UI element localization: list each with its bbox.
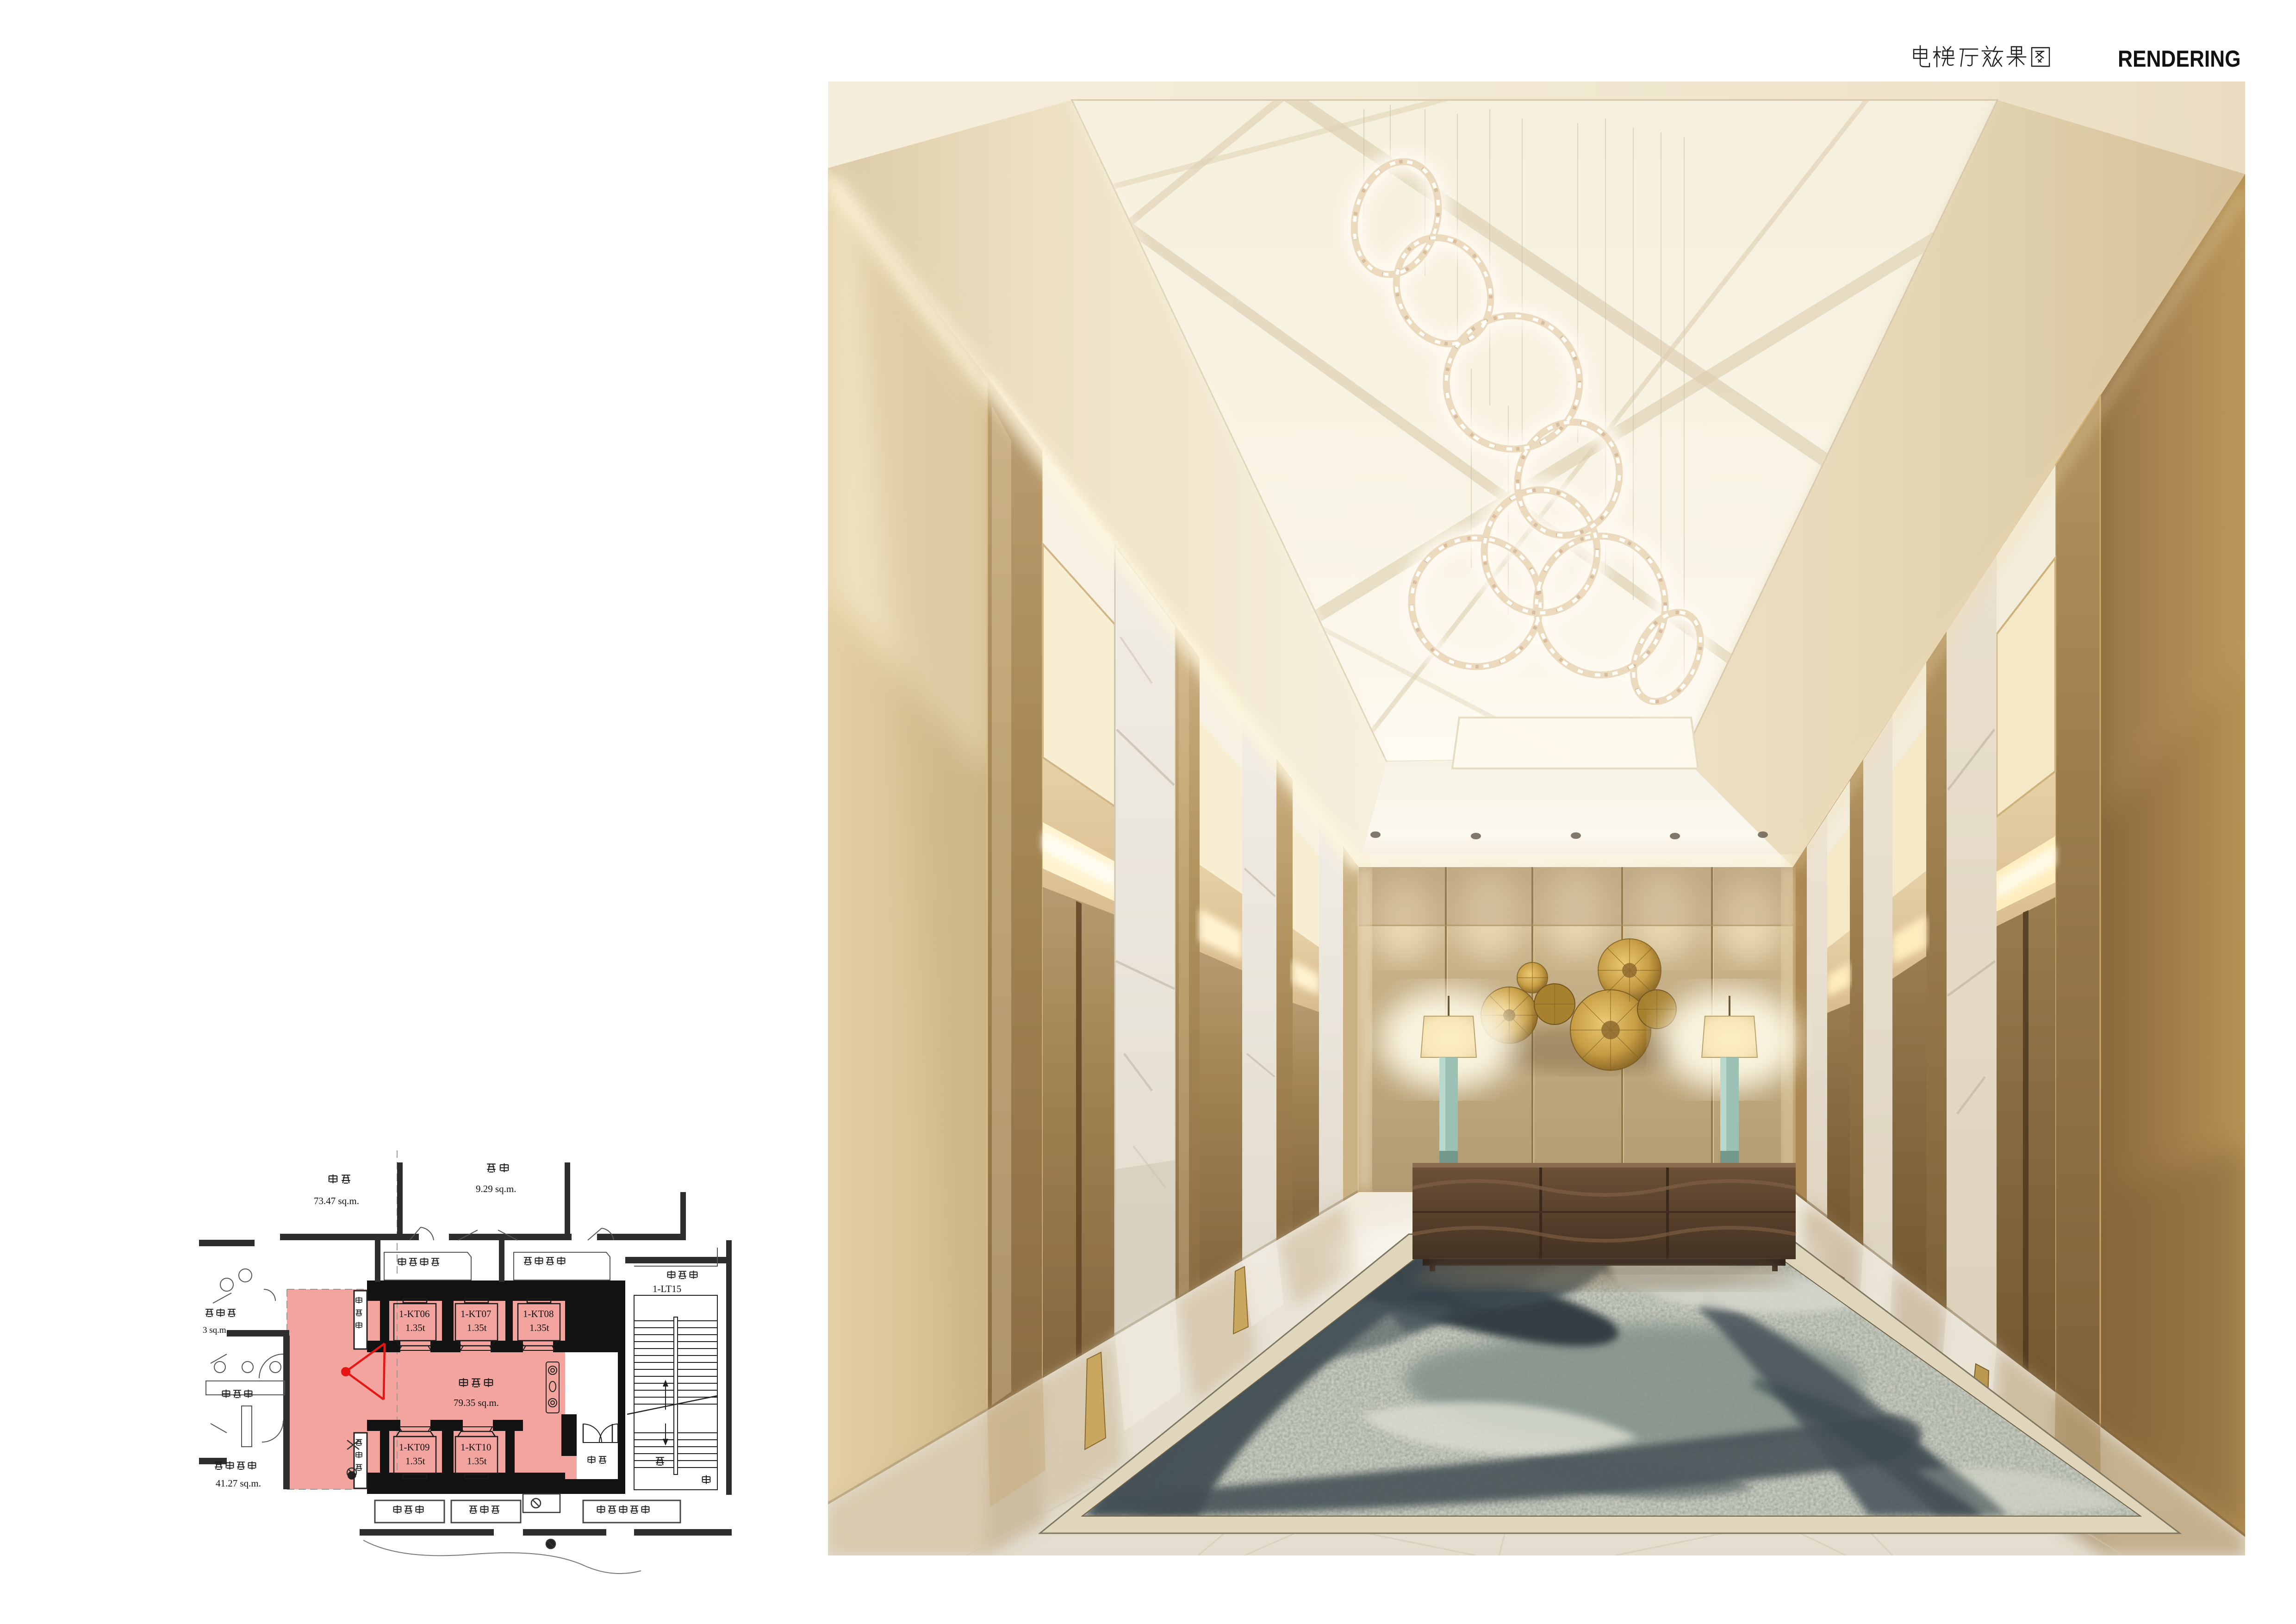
svg-text:1.35t: 1.35t: [467, 1455, 487, 1467]
svg-text:73.47 sq.m.: 73.47 sq.m.: [314, 1195, 359, 1206]
svg-text:79.35 sq.m.: 79.35 sq.m.: [454, 1397, 499, 1408]
svg-text:1-KT06: 1-KT06: [399, 1308, 430, 1319]
svg-text:3 sq.m.: 3 sq.m.: [203, 1325, 228, 1335]
svg-text:1-KT09: 1-KT09: [399, 1442, 430, 1453]
svg-text:1-LT15: 1-LT15: [653, 1283, 681, 1294]
svg-text:9.29 sq.m.: 9.29 sq.m.: [476, 1183, 516, 1194]
svg-text:1.35t: 1.35t: [467, 1322, 487, 1333]
svg-text:41.27 sq.m.: 41.27 sq.m.: [216, 1478, 261, 1489]
svg-text:1.35t: 1.35t: [405, 1455, 425, 1467]
svg-text:1-KT07: 1-KT07: [460, 1308, 492, 1319]
svg-text:1-KT10: 1-KT10: [460, 1442, 492, 1453]
svg-text:1.35t: 1.35t: [405, 1322, 425, 1333]
svg-text:1-KT08: 1-KT08: [523, 1308, 554, 1319]
svg-text:1.35t: 1.35t: [529, 1322, 549, 1333]
